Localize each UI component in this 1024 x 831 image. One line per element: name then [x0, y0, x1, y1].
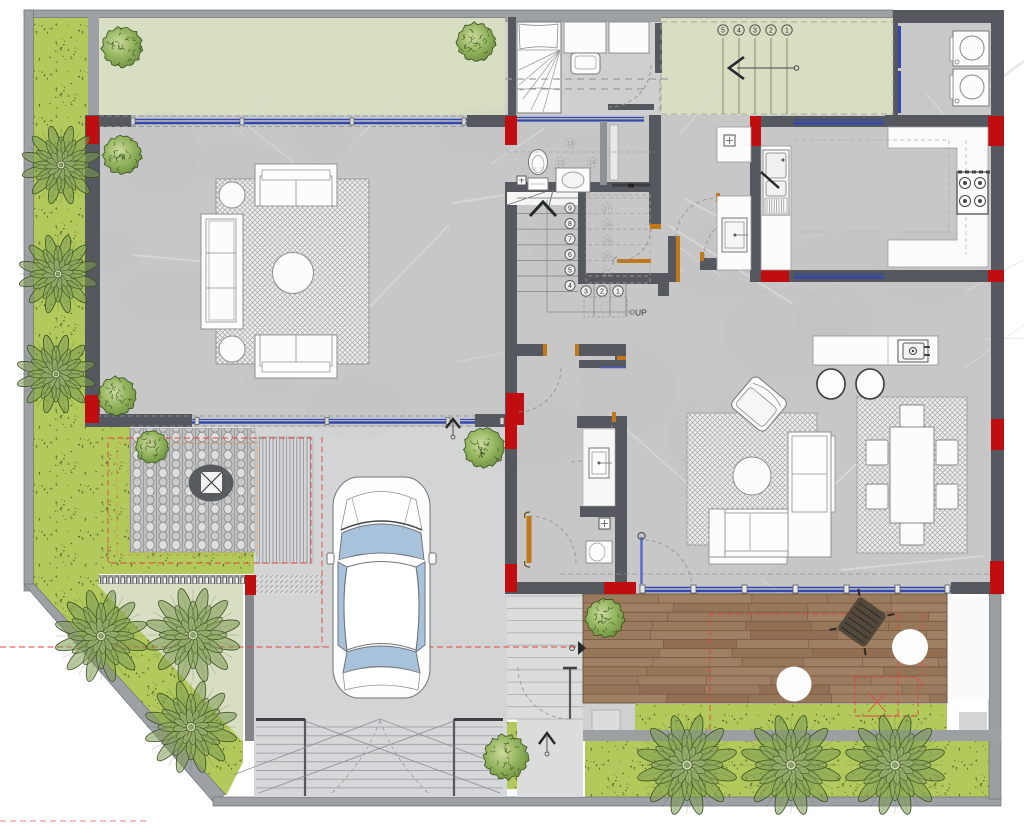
svg-text:21: 21: [603, 269, 611, 276]
svg-text:3: 3: [584, 289, 588, 296]
svg-text:14: 14: [588, 160, 596, 167]
svg-text:1: 1: [616, 289, 620, 296]
svg-text:19: 19: [603, 238, 611, 245]
svg-text:UP: UP: [635, 308, 647, 318]
svg-text:13: 13: [566, 141, 574, 148]
svg-text:4: 4: [568, 283, 572, 290]
svg-text:2: 2: [769, 28, 773, 35]
svg-text:4: 4: [737, 28, 741, 35]
svg-text:12: 12: [556, 160, 564, 167]
svg-text:6: 6: [568, 252, 572, 259]
svg-text:7: 7: [568, 237, 572, 244]
svg-text:3: 3: [753, 28, 757, 35]
svg-text:5: 5: [721, 28, 725, 35]
svg-text:20: 20: [603, 254, 611, 261]
svg-text:1: 1: [785, 28, 789, 35]
svg-text:9: 9: [568, 206, 572, 213]
svg-text:8: 8: [568, 221, 572, 228]
svg-text:17: 17: [603, 206, 611, 213]
svg-text:18: 18: [603, 222, 611, 229]
svg-text:5: 5: [568, 268, 572, 275]
svg-text:2: 2: [600, 289, 604, 296]
